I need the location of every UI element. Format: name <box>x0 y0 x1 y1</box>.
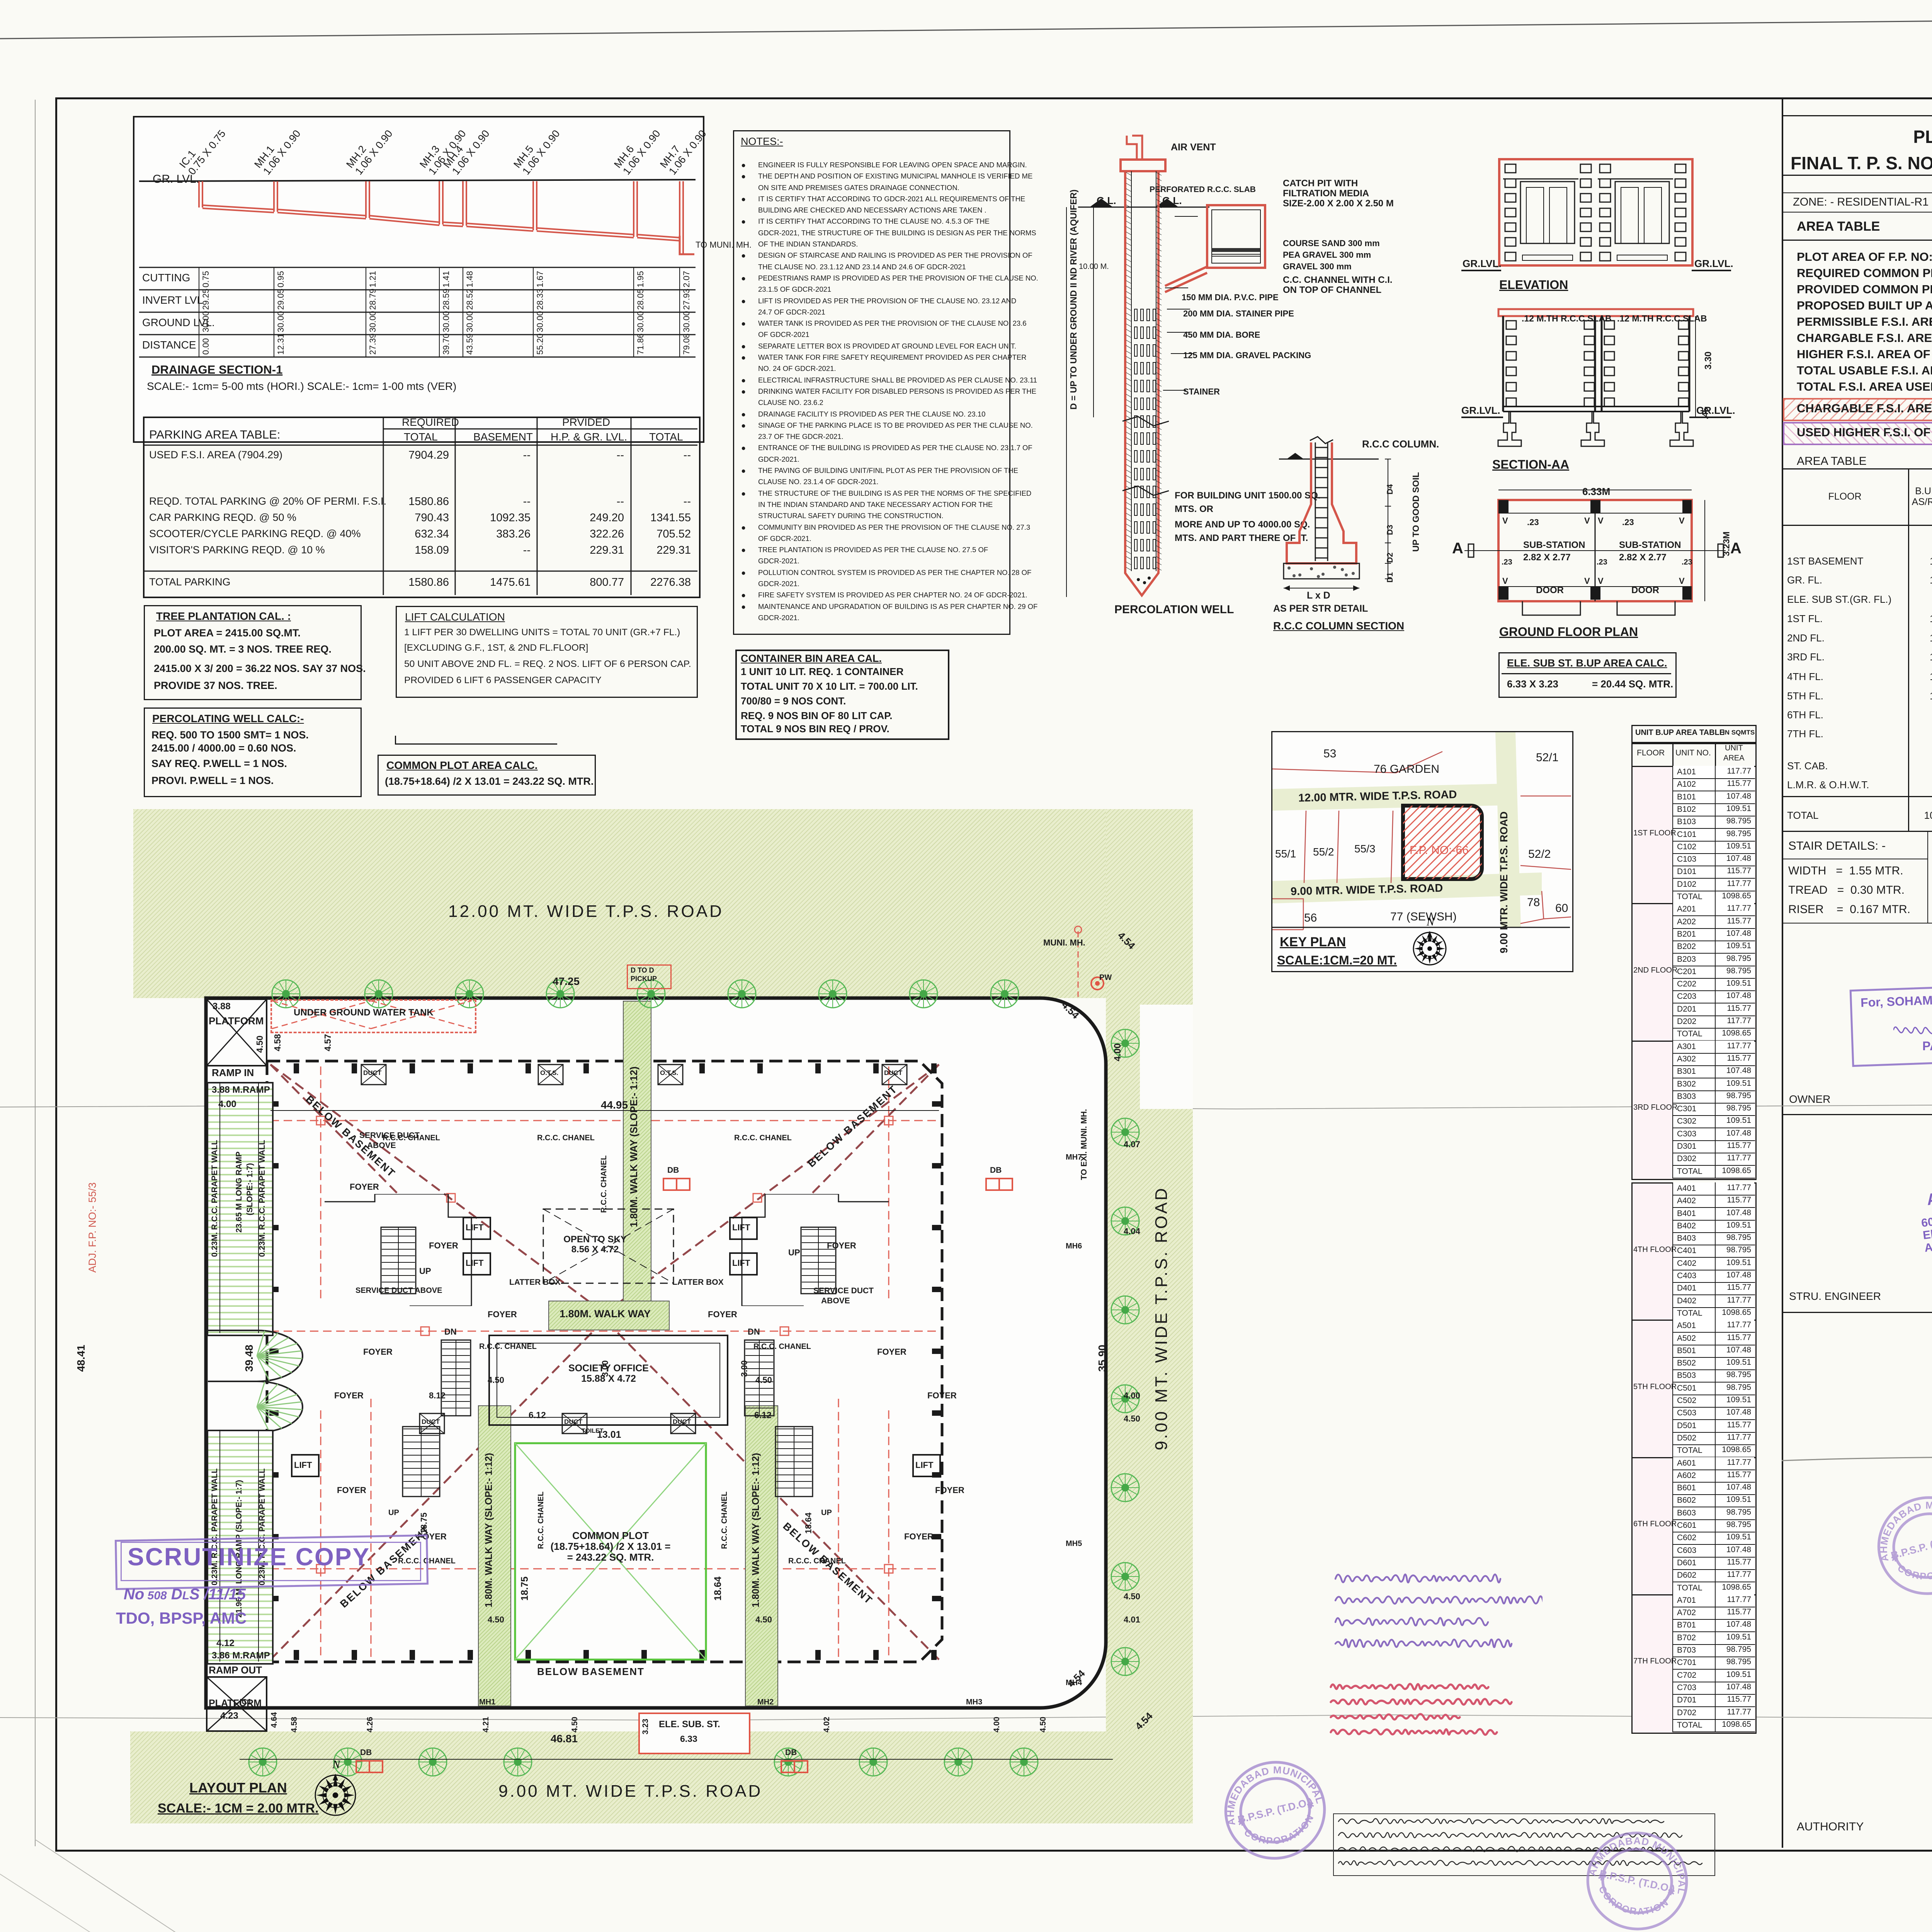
svg-text:✱: ✱ <box>1666 1886 1676 1898</box>
svg-text:N: N <box>332 1758 341 1771</box>
svg-text:✱: ✱ <box>1597 1872 1606 1884</box>
svg-text:B.P.S.P. (T.D.O.): B.P.S.P. (T.D.O.) <box>1599 1868 1676 1895</box>
svg-text:N: N <box>1426 915 1435 928</box>
